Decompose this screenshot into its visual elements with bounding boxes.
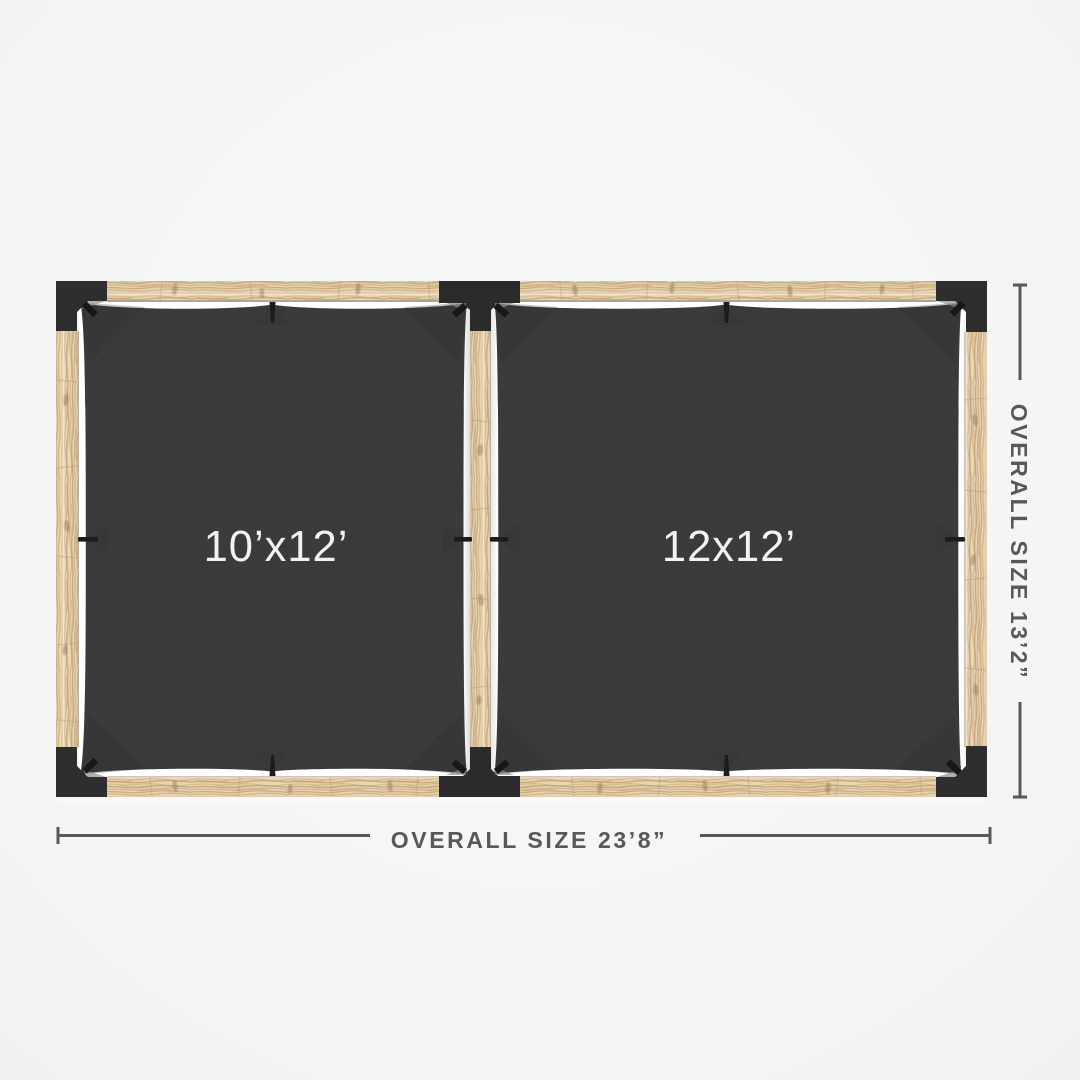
svg-text:OVERALL SIZE 13’2”: OVERALL SIZE 13’2” [1006,404,1032,680]
svg-text:12x12’: 12x12’ [662,523,796,571]
svg-text:10’x12’: 10’x12’ [204,523,349,571]
svg-text:OVERALL SIZE 23’8”: OVERALL SIZE 23’8” [391,827,667,853]
